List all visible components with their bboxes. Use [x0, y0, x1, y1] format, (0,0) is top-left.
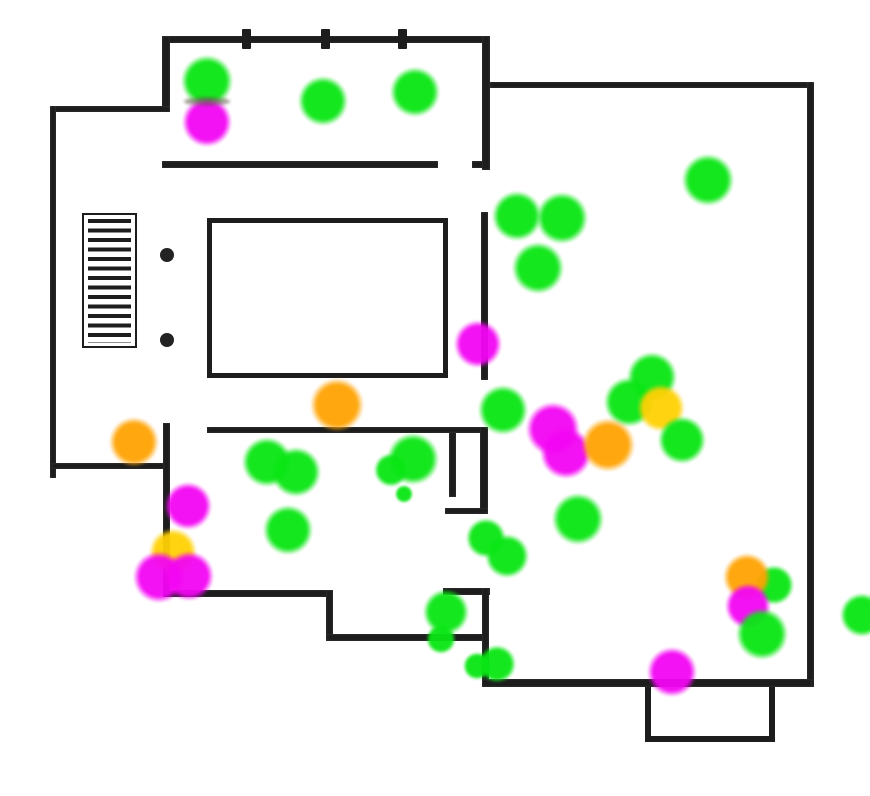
detection-blob-green — [552, 493, 604, 545]
detection-blob-magenta — [164, 551, 214, 601]
detection-blob-green — [298, 76, 348, 126]
detection-blob-green — [271, 447, 321, 497]
detection-blob-green — [736, 608, 788, 660]
detection-blob-green — [395, 485, 413, 503]
detection-blob-green — [390, 67, 440, 117]
detection-blob-magenta — [647, 647, 697, 697]
detection-blob-green — [426, 624, 456, 654]
detection-blob-green — [492, 191, 542, 241]
detection-blob-green — [658, 416, 706, 464]
detection-blob-green — [840, 593, 870, 637]
detection-blob-green — [263, 505, 313, 555]
detection-blob-green — [485, 534, 529, 578]
detection-blob-green — [682, 154, 734, 206]
detection-blob-orange — [109, 417, 159, 467]
detection-blob-green — [374, 453, 408, 487]
green-magenta-seam — [184, 97, 230, 106]
detection-blob-green — [512, 242, 564, 294]
detections-layer — [0, 0, 870, 796]
detection-blob-magenta — [164, 482, 212, 530]
detection-blob-orange — [310, 378, 364, 432]
detection-blob-green — [536, 192, 588, 244]
detection-blob-orange — [581, 418, 635, 472]
floor-plan-canvas — [0, 0, 870, 796]
detection-blob-green — [478, 645, 516, 683]
detection-blob-magenta — [454, 320, 502, 368]
detection-blob-green — [478, 385, 528, 435]
